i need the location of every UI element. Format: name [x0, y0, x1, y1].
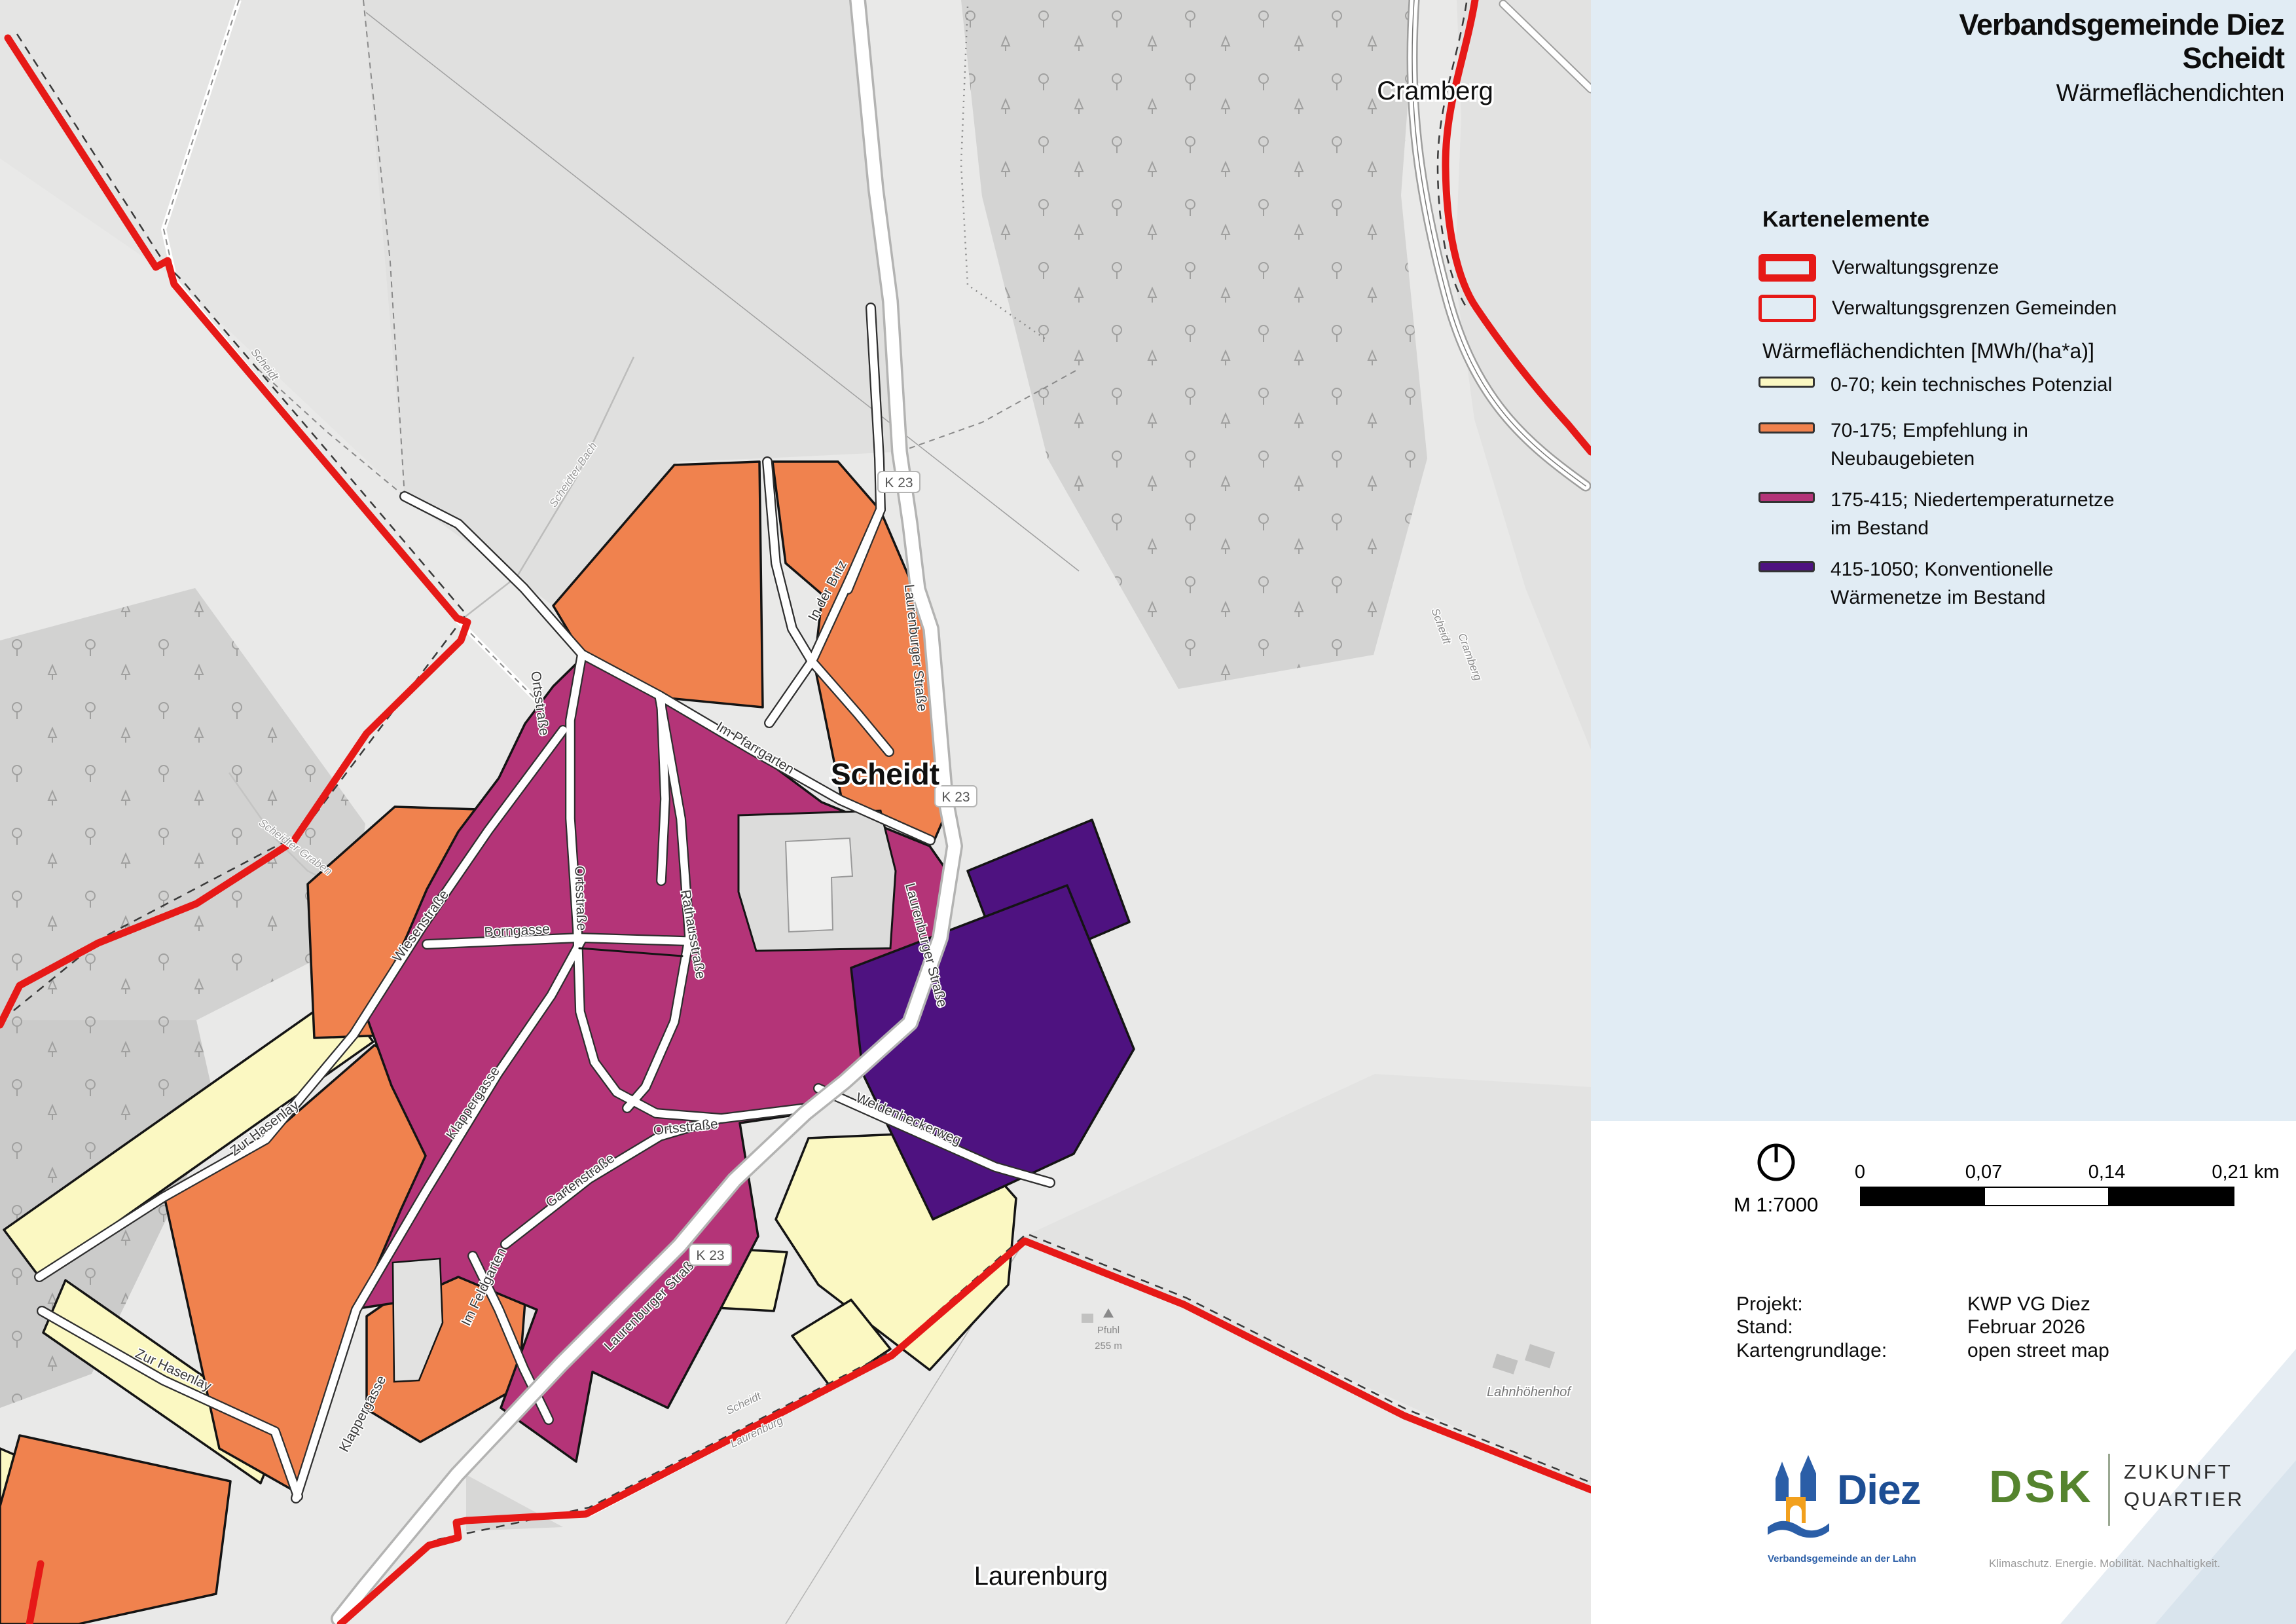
heat-label-line: Wärmenetze im Bestand [1831, 583, 2053, 612]
project-row: Projekt: KWP VG Diez [1736, 1293, 2109, 1316]
heat-swatch-magenta [1758, 492, 1815, 503]
scale-tick-2: 0,14 [2088, 1162, 2125, 1183]
place-label: Scheidt [831, 757, 939, 791]
dsk-divider [2108, 1454, 2110, 1526]
dsk-line1: ZUKUNFT [2124, 1460, 2232, 1484]
legend-panel: Verbandsgemeinde Diez Scheidt Wärmefläch… [1591, 0, 2296, 1121]
page: Scheidter BachScheidter Graben ScheidtSc… [0, 0, 2296, 1624]
scale-ratio: M 1:7000 [1734, 1193, 1818, 1217]
street-label: Ortsstraße [572, 866, 589, 931]
legend-item-verwaltungsgrenzen-gemeinden: Verwaltungsgrenzen Gemeinden [1758, 295, 2117, 322]
heat-swatch-yellow [1758, 377, 1815, 388]
scale-bar [1860, 1187, 2234, 1206]
diez-castle-icon [1766, 1454, 1832, 1545]
heat-label-line: 175-415; Niedertemperaturnetze [1831, 486, 2115, 514]
legend-item-label: 415-1050; Konventionelle Wärmenetze im B… [1831, 555, 2053, 612]
legend-item-label: 0-70; kein technisches Potenzial [1831, 371, 2112, 399]
diez-tagline: Verbandsgemeinde an der Lahn [1768, 1553, 1916, 1564]
diez-logo: Diez Verbandsgemeinde an der Lahn [1766, 1454, 1963, 1549]
minor-place-label: Lahnhöhenhof [1487, 1385, 1572, 1399]
map-canvas[interactable]: Scheidter BachScheidter Graben ScheidtSc… [0, 0, 1591, 1624]
scale-bar-segment [1985, 1188, 2108, 1205]
verwaltungsgrenzen-gemeinden-swatch [1758, 295, 1816, 322]
verwaltungsgrenze-swatch [1758, 254, 1816, 282]
diez-wordmark: Diez [1837, 1466, 1921, 1514]
project-info: Projekt: KWP VG Diez Stand: Februar 2026… [1736, 1293, 2109, 1362]
project-value: Februar 2026 [1967, 1316, 2085, 1338]
legend-item-label: Verwaltungsgrenzen Gemeinden [1832, 297, 2117, 320]
legend-item-heat-3: 415-1050; Konventionelle Wärmenetze im B… [1758, 555, 2053, 612]
legend-item-heat-0: 0-70; kein technisches Potenzial [1758, 371, 2112, 399]
heat-swatch-orange [1758, 422, 1815, 434]
map-title: Verbandsgemeinde Diez Scheidt Wärmefläch… [1959, 8, 2284, 107]
legend-item-heat-2: 175-415; Niedertemperaturnetze im Bestan… [1758, 486, 2115, 542]
title-line-2: Scheidt [1959, 41, 2284, 75]
heat-label-line: Neubaugebieten [1831, 445, 2028, 473]
legend-item-label: 175-415; Niedertemperaturnetze im Bestan… [1831, 486, 2115, 542]
title-line-1: Verbandsgemeinde Diez [1959, 8, 2284, 41]
scale-bar-segment [2108, 1188, 2233, 1205]
project-label: Projekt: [1736, 1293, 1967, 1316]
info-panel: Verbandsgemeinde Diez Scheidt Wärmefläch… [1591, 0, 2296, 1624]
project-label: Stand: [1736, 1316, 1967, 1338]
title-subtitle: Wärmeflächendichten [1959, 79, 2284, 107]
heat-label-line: 415-1050; Konventionelle [1831, 555, 2053, 583]
heat-legend-heading: Wärmeflächendichten [MWh/(ha*a)] [1762, 339, 2094, 363]
north-arrow-icon [1753, 1139, 1799, 1185]
heat-label-line: im Bestand [1831, 514, 2115, 542]
legend-heading: Kartenelemente [1762, 207, 1929, 232]
scale-tick-1: 0,07 [1965, 1162, 2002, 1183]
road-ref-text: K 23 [696, 1248, 724, 1263]
scale-bar-segment [1861, 1188, 1985, 1205]
project-label: Kartengrundlage: [1736, 1339, 1967, 1362]
legend-item-label: 70-175; Empfehlung in Neubaugebieten [1831, 416, 2028, 473]
legend-item-heat-1: 70-175; Empfehlung in Neubaugebieten [1758, 416, 2028, 473]
scale-tick-3: 0,21 km [2212, 1162, 2279, 1183]
place-label: Cramberg [1377, 77, 1493, 105]
legend-item-label: Verwaltungsgrenze [1832, 257, 1999, 279]
dsk-tagline: Klimaschutz. Energie. Mobilität. Nachhal… [1989, 1557, 2220, 1570]
heat-label-line: 70-175; Empfehlung in [1831, 416, 2028, 445]
heat-label-line: 0-70; kein technisches Potenzial [1831, 371, 2112, 399]
project-row: Stand: Februar 2026 [1736, 1316, 2109, 1338]
legend-item-verwaltungsgrenze: Verwaltungsgrenze [1758, 254, 1999, 282]
place-label: Laurenburg [974, 1562, 1108, 1591]
peak-elevation: 255 m [1095, 1340, 1122, 1352]
road-ref-text: K 23 [941, 790, 970, 805]
peak-name: Pfuhl [1097, 1325, 1120, 1336]
decorative-triangles [2060, 1349, 2296, 1624]
footer-panel: M 1:7000 0 0,07 0,14 0,21 km Projekt: KW… [1591, 1121, 2296, 1624]
project-value: KWP VG Diez [1967, 1293, 2090, 1316]
heat-swatch-purple [1758, 561, 1815, 572]
scale-tick-0: 0 [1855, 1162, 1865, 1183]
road-ref-text: K 23 [884, 475, 913, 490]
dsk-wordmark: DSK [1989, 1460, 2094, 1513]
dsk-line2: QUARTIER [2124, 1488, 2244, 1511]
project-row: Kartengrundlage: open street map [1736, 1339, 2109, 1362]
